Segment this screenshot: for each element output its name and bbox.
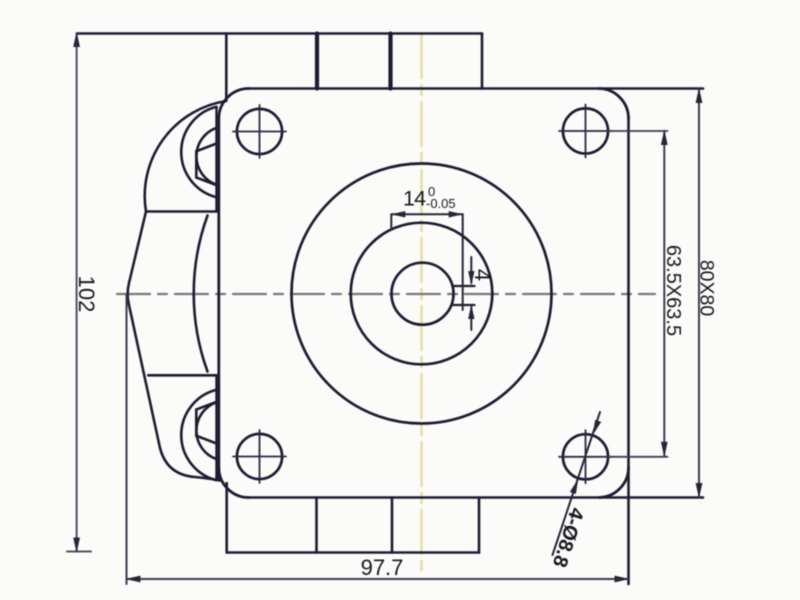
svg-text:14: 14 (403, 187, 426, 211)
svg-text:-0.05: -0.05 (426, 196, 456, 211)
svg-text:102: 102 (74, 276, 99, 313)
svg-text:63.5X63.5: 63.5X63.5 (662, 245, 684, 336)
svg-text:4: 4 (470, 269, 495, 281)
svg-text:97.7: 97.7 (361, 555, 404, 580)
svg-text:80X80: 80X80 (696, 260, 718, 317)
